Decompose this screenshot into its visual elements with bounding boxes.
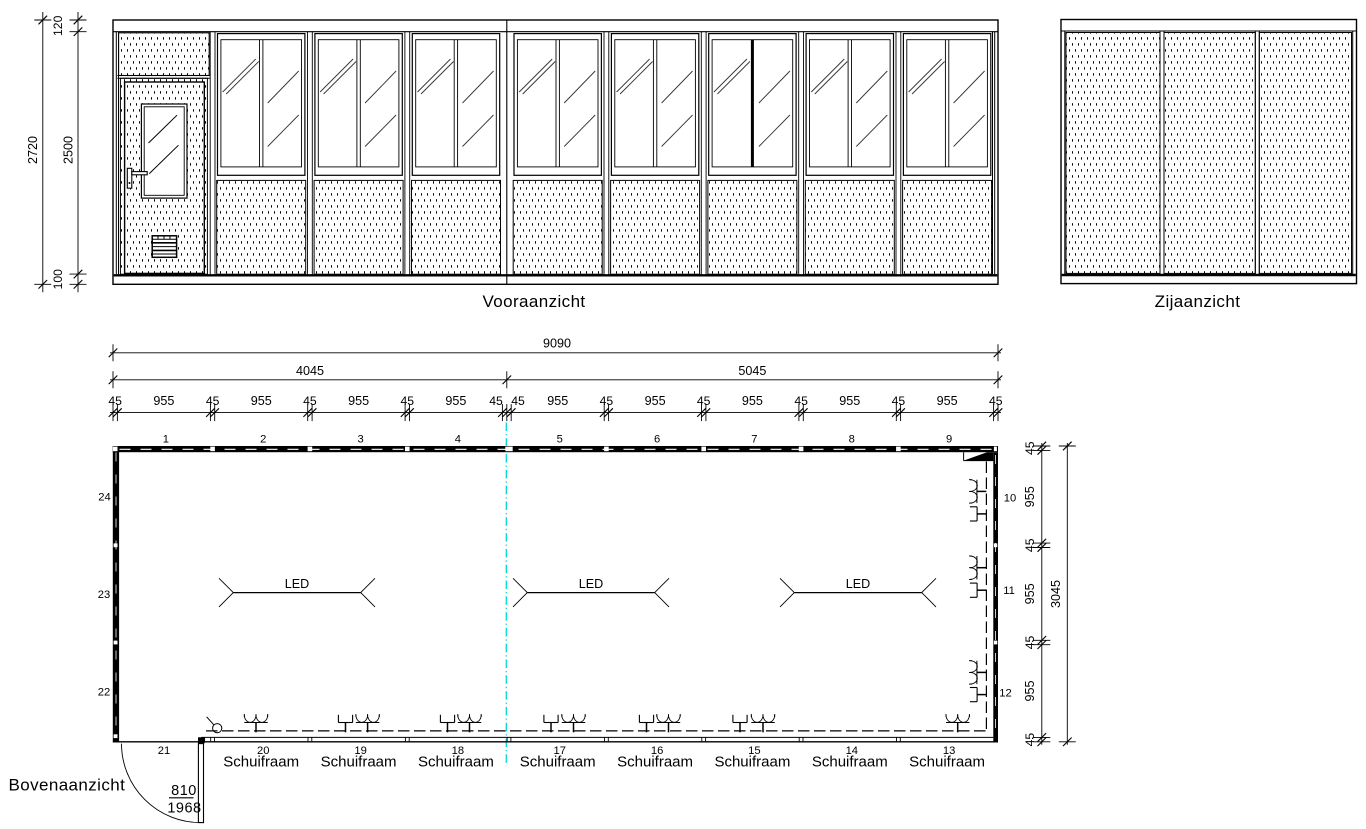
svg-text:45: 45 [600, 394, 614, 408]
svg-text:22: 22 [98, 687, 110, 699]
svg-text:120: 120 [51, 15, 65, 36]
svg-text:24: 24 [98, 492, 110, 504]
svg-text:Schuifraam: Schuifraam [520, 754, 596, 771]
svg-text:LED: LED [579, 577, 604, 591]
svg-text:45: 45 [1023, 538, 1037, 552]
svg-text:955: 955 [742, 394, 763, 408]
svg-text:45: 45 [511, 394, 525, 408]
svg-text:955: 955 [251, 394, 272, 408]
svg-text:955: 955 [645, 394, 666, 408]
svg-text:810: 810 [171, 783, 197, 799]
svg-text:45: 45 [1023, 636, 1037, 650]
svg-text:45: 45 [303, 394, 317, 408]
svg-text:7: 7 [751, 433, 757, 445]
svg-text:45: 45 [108, 394, 122, 408]
svg-text:4045: 4045 [296, 364, 324, 378]
svg-text:Schuifraam: Schuifraam [909, 754, 985, 771]
svg-text:9: 9 [946, 433, 952, 445]
svg-text:6: 6 [654, 433, 660, 445]
svg-text:2500: 2500 [62, 136, 76, 164]
svg-text:955: 955 [1023, 486, 1037, 507]
svg-text:Schuifraam: Schuifraam [418, 754, 494, 771]
svg-text:45: 45 [1023, 733, 1037, 747]
svg-text:Bovenaanzicht: Bovenaanzicht [9, 776, 126, 795]
svg-text:955: 955 [1023, 583, 1037, 604]
svg-text:10: 10 [1004, 493, 1016, 505]
svg-text:1968: 1968 [167, 800, 201, 816]
svg-text:955: 955 [445, 394, 466, 408]
svg-text:45: 45 [697, 394, 711, 408]
svg-text:45: 45 [989, 394, 1003, 408]
svg-text:Schuifraam: Schuifraam [223, 754, 299, 771]
svg-text:Schuifraam: Schuifraam [321, 754, 397, 771]
svg-text:9090: 9090 [543, 337, 571, 351]
svg-text:Schuifraam: Schuifraam [617, 754, 693, 771]
svg-text:955: 955 [348, 394, 369, 408]
svg-text:4: 4 [455, 433, 461, 445]
svg-text:45: 45 [1023, 441, 1037, 455]
svg-text:5045: 5045 [738, 364, 766, 378]
svg-text:2: 2 [260, 433, 266, 445]
svg-text:Schuifraam: Schuifraam [812, 754, 888, 771]
svg-text:LED: LED [846, 577, 871, 591]
svg-text:LED: LED [285, 577, 310, 591]
svg-text:45: 45 [794, 394, 808, 408]
svg-text:3045: 3045 [1049, 580, 1063, 608]
svg-text:8: 8 [849, 433, 855, 445]
svg-text:Zijaanzicht: Zijaanzicht [1155, 292, 1241, 311]
svg-text:45: 45 [401, 394, 415, 408]
svg-text:45: 45 [489, 394, 503, 408]
svg-text:955: 955 [937, 394, 958, 408]
svg-text:21: 21 [158, 745, 170, 757]
svg-text:100: 100 [51, 269, 65, 290]
svg-text:45: 45 [892, 394, 906, 408]
svg-text:955: 955 [839, 394, 860, 408]
svg-text:955: 955 [153, 394, 174, 408]
svg-text:45: 45 [206, 394, 220, 408]
svg-text:955: 955 [547, 394, 568, 408]
svg-text:2720: 2720 [26, 136, 40, 164]
svg-text:5: 5 [557, 433, 563, 445]
svg-text:Vooraanzicht: Vooraanzicht [482, 292, 585, 311]
svg-text:Schuifraam: Schuifraam [714, 754, 790, 771]
svg-text:955: 955 [1023, 680, 1037, 701]
svg-text:12: 12 [999, 687, 1011, 699]
svg-text:1: 1 [163, 433, 169, 445]
svg-text:23: 23 [98, 589, 110, 601]
svg-text:11: 11 [1003, 585, 1015, 597]
svg-text:3: 3 [357, 433, 363, 445]
